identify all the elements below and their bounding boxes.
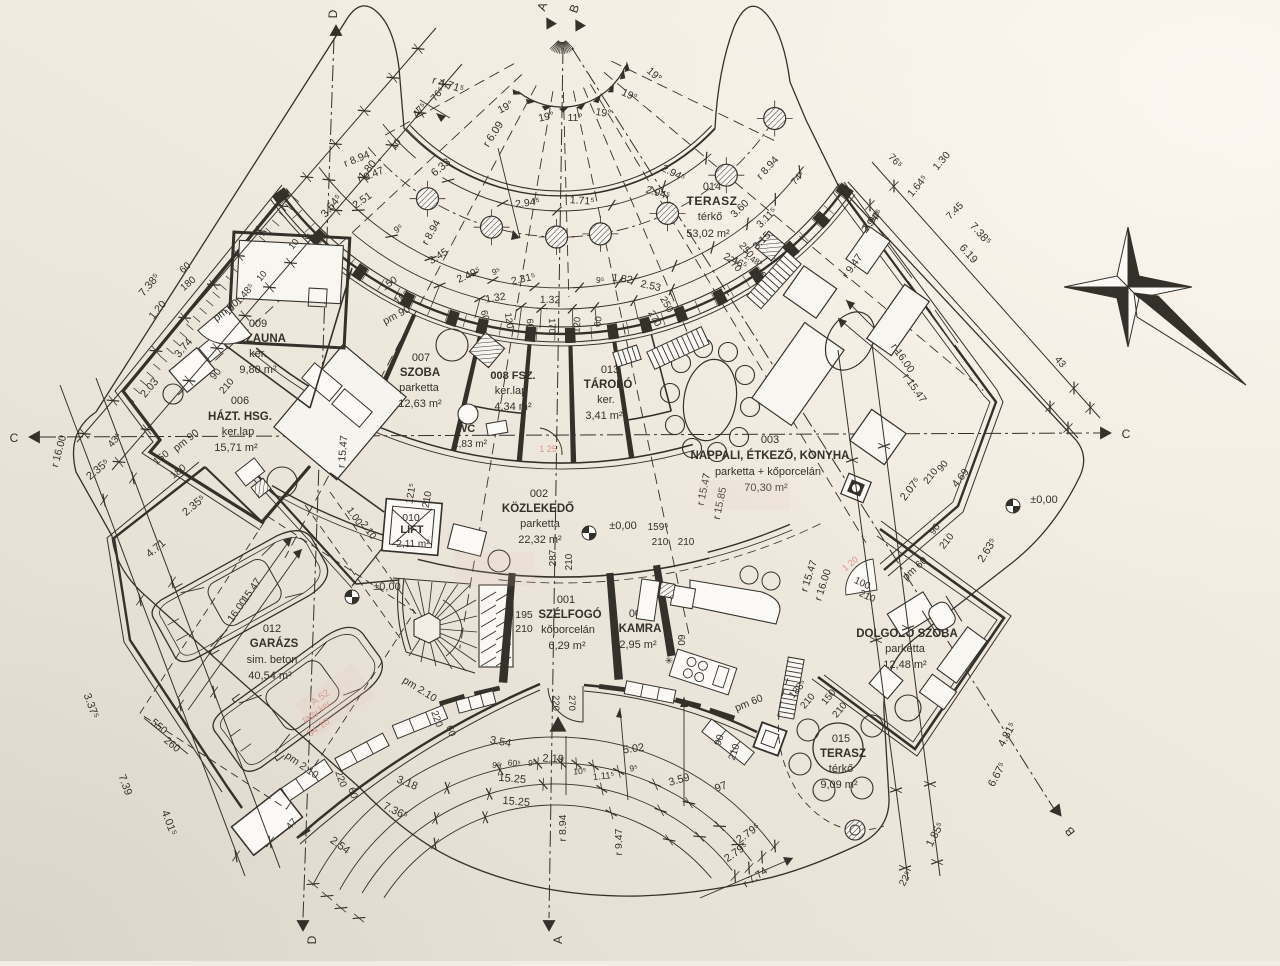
svg-text:9⁵: 9⁵ [528,758,537,769]
svg-text:9,09 m²: 9,09 m² [820,779,858,791]
svg-text:003: 003 [761,434,779,446]
svg-text:C: C [10,431,19,445]
svg-text:±0,00: ±0,00 [373,581,400,593]
svg-text:1.32: 1.32 [540,294,561,306]
svg-text:parketta: parketta [520,518,561,530]
svg-text:HÁZT. HSG.: HÁZT. HSG. [208,410,272,423]
svg-text:r 9.47: r 9.47 [613,828,625,855]
svg-text:térkő: térkő [829,763,853,775]
svg-text:parketta: parketta [885,643,926,655]
svg-text:TÁROLÓ: TÁROLÓ [584,378,633,391]
svg-text:11°: 11° [567,112,582,124]
svg-text:ker.lap: ker.lap [222,426,254,438]
svg-text:014: 014 [703,181,721,193]
svg-text:210: 210 [564,553,575,570]
svg-text:A: A [551,936,565,944]
svg-text:210: 210 [515,623,533,635]
svg-text:±0,00: ±0,00 [1030,494,1057,506]
svg-text:159⁵: 159⁵ [648,522,669,533]
svg-text:40,54 m²: 40,54 m² [248,670,292,682]
svg-text:SZÉLFOGÓ: SZÉLFOGÓ [538,608,601,621]
svg-text:15,71 m²: 15,71 m² [214,442,258,454]
svg-text:ker.lap: ker.lap [495,385,527,397]
svg-text:210: 210 [678,537,695,548]
svg-text:parketta + kőporcelán: parketta + kőporcelán [715,466,821,478]
svg-text:12,63 m²: 12,63 m² [398,398,442,410]
svg-text:9⁵: 9⁵ [629,763,639,774]
svg-text:r 8.94: r 8.94 [557,814,569,841]
svg-text:1 25: 1 25 [539,444,557,454]
svg-text:15.25: 15.25 [502,795,530,809]
svg-text:001: 001 [557,594,575,606]
svg-text:ker.: ker. [249,348,267,360]
svg-text:60: 60 [675,634,686,646]
svg-text:007: 007 [412,352,430,364]
svg-text:4,34 m²: 4,34 m² [494,401,532,413]
svg-text:22,32 m²: 22,32 m² [518,534,562,546]
svg-text:170: 170 [546,318,557,334]
svg-text:220: 220 [550,695,561,711]
svg-text:015: 015 [832,733,850,745]
svg-text:GARÁZS: GARÁZS [250,637,299,650]
svg-text:térkő: térkő [698,211,722,223]
svg-text:19°: 19° [595,106,612,120]
svg-text:15.25: 15.25 [498,772,526,786]
svg-text:2.19: 2.19 [542,752,564,765]
svg-text:parketta: parketta [399,382,440,394]
svg-text:✳: ✳ [665,656,673,667]
svg-text:6,29 m²: 6,29 m² [548,640,586,652]
svg-text:D: D [326,9,340,18]
svg-text:1.71⁵: 1.71⁵ [569,194,595,208]
svg-text:195: 195 [515,609,533,621]
svg-text:012: 012 [263,623,281,635]
svg-text:009: 009 [249,318,267,330]
svg-text:1.11⁵: 1.11⁵ [592,770,615,783]
svg-text:10⁵: 10⁵ [573,766,587,777]
svg-text:TERASZ: TERASZ [820,748,866,760]
svg-text:010: 010 [402,512,420,524]
svg-text:9,80 m²: 9,80 m² [239,364,277,376]
svg-text:WC: WC [457,423,475,435]
svg-text:013: 013 [601,364,619,376]
svg-text:1,83 m²: 1,83 m² [453,439,488,450]
svg-text:006: 006 [231,395,249,407]
svg-text:60⁵: 60⁵ [507,757,521,768]
svg-text:NAPPALI, ÉTKEZŐ, KONYHA: NAPPALI, ÉTKEZŐ, KONYHA [691,449,850,462]
svg-text:SZOBA: SZOBA [400,367,440,379]
svg-text:D: D [305,935,319,944]
svg-text:KÖZLEKEDŐ: KÖZLEKEDŐ [502,502,574,515]
svg-text:kőporcelán: kőporcelán [541,624,595,636]
svg-text:2,95 m²: 2,95 m² [619,639,657,651]
svg-text:53,02 m²: 53,02 m² [686,228,730,240]
svg-text:9⁵: 9⁵ [492,760,501,771]
svg-text:287: 287 [548,549,559,566]
svg-text:±0,00: ±0,00 [609,520,636,532]
svg-text:2,11 m²: 2,11 m² [396,539,430,550]
svg-text:LIFT: LIFT [400,524,423,536]
svg-text:sim. beton: sim. beton [247,654,298,666]
svg-text:KAMRA: KAMRA [619,623,662,635]
svg-text:9⁵: 9⁵ [596,275,605,285]
svg-text:002: 002 [530,488,548,500]
svg-text:210: 210 [652,537,669,548]
svg-text:TERASZ: TERASZ [687,194,738,208]
svg-text:C: C [1122,427,1131,441]
svg-text:3,41 m²: 3,41 m² [585,410,623,422]
svg-text:270: 270 [566,695,577,711]
svg-text:120: 120 [502,312,515,329]
svg-text:ker.: ker. [597,394,615,406]
svg-text:008 FSZ.: 008 FSZ. [490,370,535,382]
